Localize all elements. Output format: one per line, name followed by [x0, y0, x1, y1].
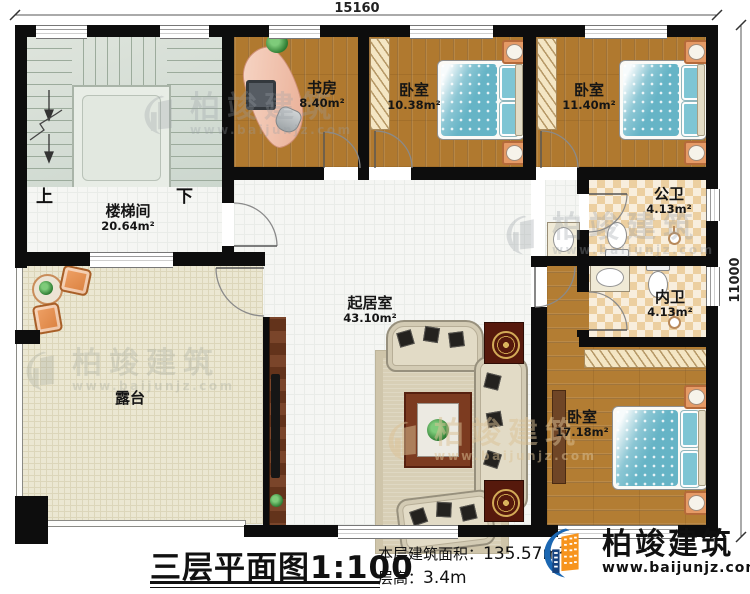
dimension-right: 11000 [728, 248, 743, 312]
wall [15, 25, 27, 268]
floor-height-info: 层高：3.4m [378, 567, 467, 588]
wall [579, 337, 706, 347]
sliding-door [90, 252, 173, 268]
floor-height-value: 3.4m [423, 568, 467, 588]
wardrobe [584, 349, 708, 368]
room-label-terrace: 露台 [95, 390, 165, 407]
room-label-living: 起居室 43.10m² [332, 295, 408, 325]
stairs-down-label: 下 [176, 182, 193, 207]
wall [531, 256, 547, 267]
wall [15, 330, 40, 344]
title-underline [150, 581, 380, 584]
dimension-top: 15160 [322, 1, 392, 16]
room-name: 书房 [287, 80, 357, 97]
wall [358, 37, 369, 180]
wall [577, 180, 589, 194]
room-label-inner-bath: 内卫 4.13m² [635, 289, 705, 319]
floor-plan: 柏竣建筑 www.baijunjz.com 柏竣建筑 www.baijunjz.… [0, 0, 750, 594]
computer-monitor [246, 80, 276, 110]
window [706, 267, 720, 306]
floor-area-label: 本层建筑面积： [378, 545, 483, 563]
window [706, 189, 720, 221]
room-area: 20.64m² [92, 220, 164, 233]
window [338, 525, 458, 539]
bathroom-sink [590, 263, 630, 292]
room-label-bedroom1: 卧室 10.38m² [379, 82, 449, 112]
side-table [484, 322, 524, 364]
terrace-chair [59, 264, 93, 296]
floor-height-label: 层高： [378, 569, 423, 587]
room-area: 43.10m² [332, 312, 408, 325]
room-area: 17.18m² [545, 426, 619, 439]
room-label-public-bath: 公卫 4.13m² [634, 186, 704, 216]
coffee-table [404, 392, 472, 468]
room-name: 公卫 [634, 186, 704, 203]
brand-name: 柏竣建筑 [602, 530, 750, 560]
window [36, 25, 87, 39]
terrace-plant [39, 281, 53, 295]
wall [222, 37, 234, 203]
room-label-bedroom2: 卧室 11.40m² [554, 82, 624, 112]
stairs-up-label: 上 [36, 182, 53, 207]
room-area: 11.40m² [554, 99, 624, 112]
room-name: 卧室 [554, 82, 624, 99]
wall [411, 167, 523, 180]
window [585, 25, 667, 39]
stair-opening [72, 85, 171, 191]
window [410, 25, 493, 39]
title-underline-thin [150, 587, 380, 588]
wall [234, 167, 324, 180]
brand-logo-icon [536, 524, 594, 582]
room-area: 4.13m² [634, 203, 704, 216]
room-area: 4.13m² [635, 306, 705, 319]
tv-plant [270, 494, 283, 507]
room-label-stairwell: 楼梯间 20.64m² [92, 203, 164, 233]
wall [523, 37, 536, 180]
room-name: 露台 [95, 390, 165, 407]
stair-flight-left [27, 37, 72, 187]
table-plant [427, 419, 449, 441]
sofa [386, 320, 484, 372]
vanity-sink [547, 222, 580, 257]
wall [577, 330, 589, 337]
window [160, 25, 209, 39]
wall [244, 525, 338, 537]
bed [612, 406, 708, 490]
wall [577, 230, 589, 256]
wall [577, 266, 589, 292]
brand-logo: 柏竣建筑 www.baijunjz.com [536, 524, 750, 582]
wall [15, 496, 48, 544]
room-area: 10.38m² [379, 99, 449, 112]
bed [619, 60, 707, 140]
room-name: 起居室 [332, 295, 408, 312]
room-label-study: 书房 8.40m² [287, 80, 357, 110]
room-name: 卧室 [545, 409, 619, 426]
terrace-railing-left [16, 266, 23, 526]
wall [547, 256, 706, 266]
window [269, 25, 320, 39]
side-table [484, 480, 524, 522]
room-area: 8.40m² [287, 97, 357, 110]
wall [577, 167, 706, 180]
room-name: 内卫 [635, 289, 705, 306]
terrace-railing-bottom [22, 520, 246, 527]
room-name: 楼梯间 [92, 203, 164, 220]
bed [437, 60, 525, 140]
ceiling-lamp-icon [668, 232, 681, 245]
room-label-bedroom3: 卧室 17.18m² [545, 409, 619, 439]
stair-flight-top [72, 37, 167, 85]
toilet [605, 222, 629, 258]
room-name: 卧室 [379, 82, 449, 99]
wall [263, 317, 269, 535]
tv [271, 374, 280, 478]
brand-url: www.baijunjz.com [602, 560, 750, 576]
stair-flight-right [167, 37, 222, 187]
